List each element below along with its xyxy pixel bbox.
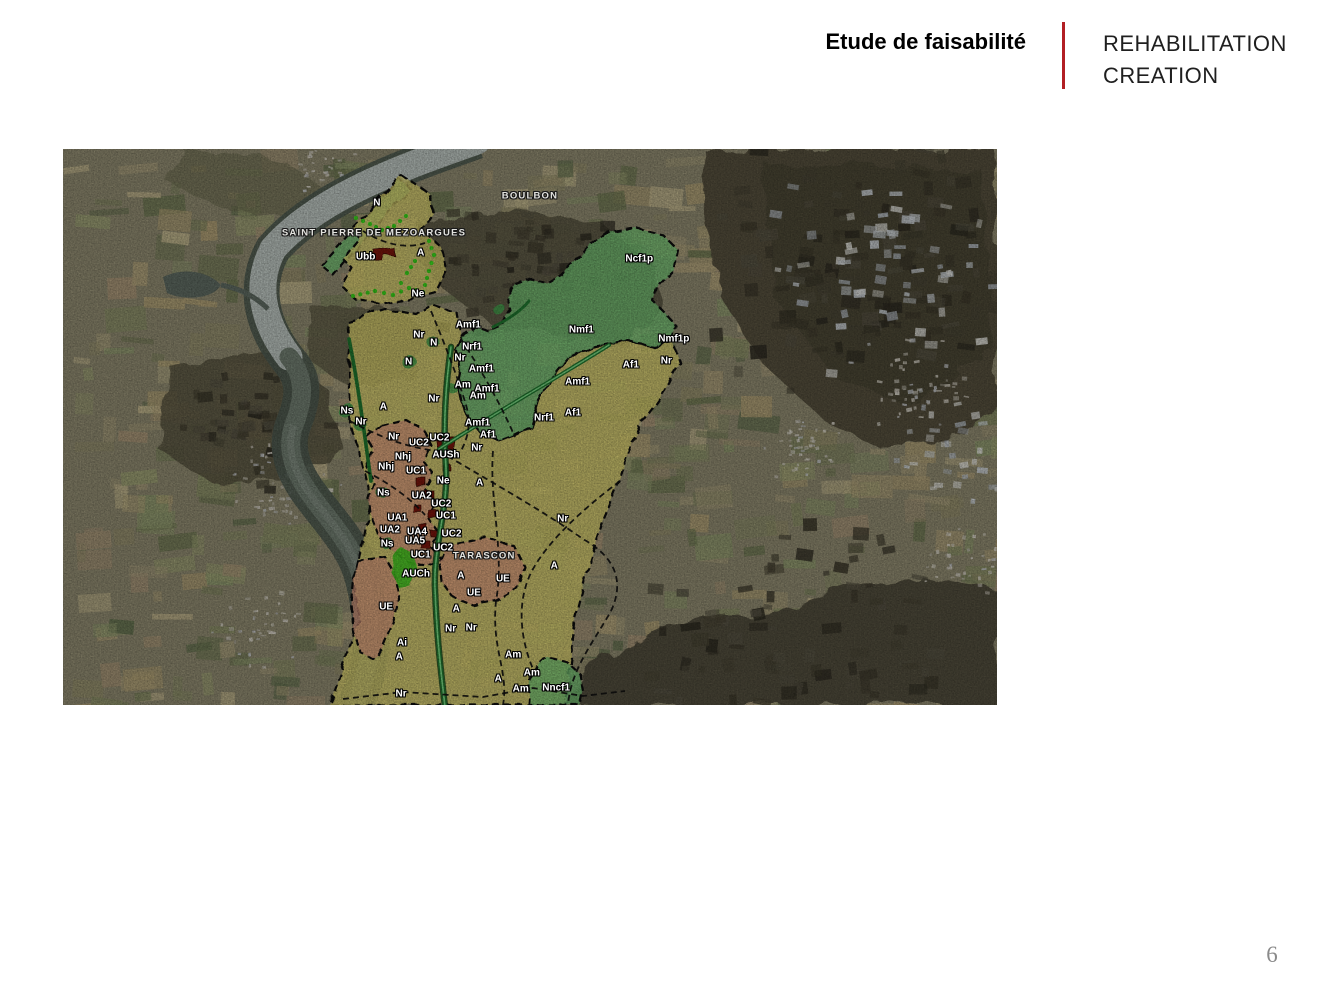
zoning-map: SAINT PIERRE DE MEZOARGUESBOULBONTARASCO… — [63, 149, 997, 705]
page-number: 6 — [1252, 942, 1292, 968]
slide-subtitle: REHABILITATION CREATION — [1103, 28, 1287, 92]
grain-overlay — [63, 149, 997, 705]
subtitle-line-1: REHABILITATION — [1103, 28, 1287, 60]
header-divider — [1062, 22, 1065, 89]
slide-title: Etude de faisabilité — [826, 29, 1027, 55]
subtitle-line-2: CREATION — [1103, 60, 1287, 92]
slide: Etude de faisabilité REHABILITATION CREA… — [0, 0, 1344, 1008]
satellite-zoning-map-image — [63, 149, 997, 705]
